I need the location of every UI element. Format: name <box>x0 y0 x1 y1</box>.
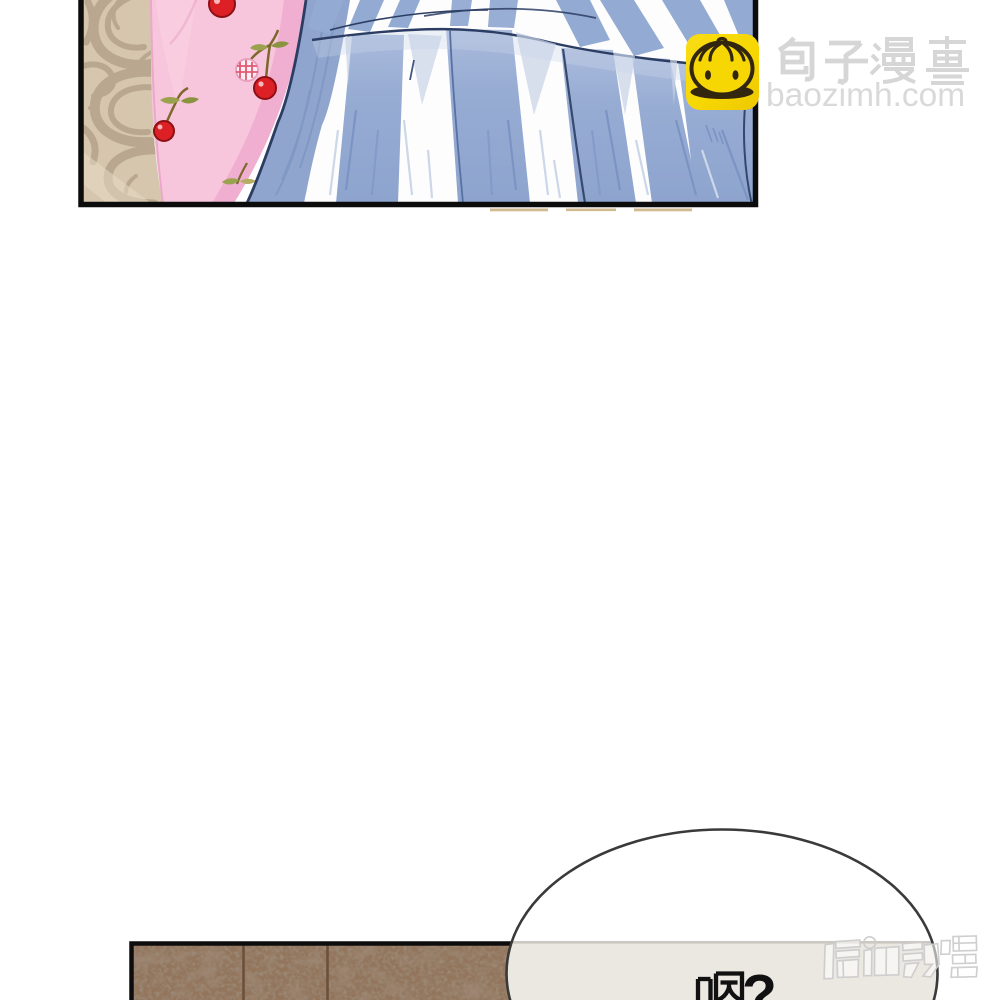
svg-text:baozimh.com: baozimh.com <box>766 77 965 114</box>
svg-text:?: ? <box>742 963 777 1000</box>
